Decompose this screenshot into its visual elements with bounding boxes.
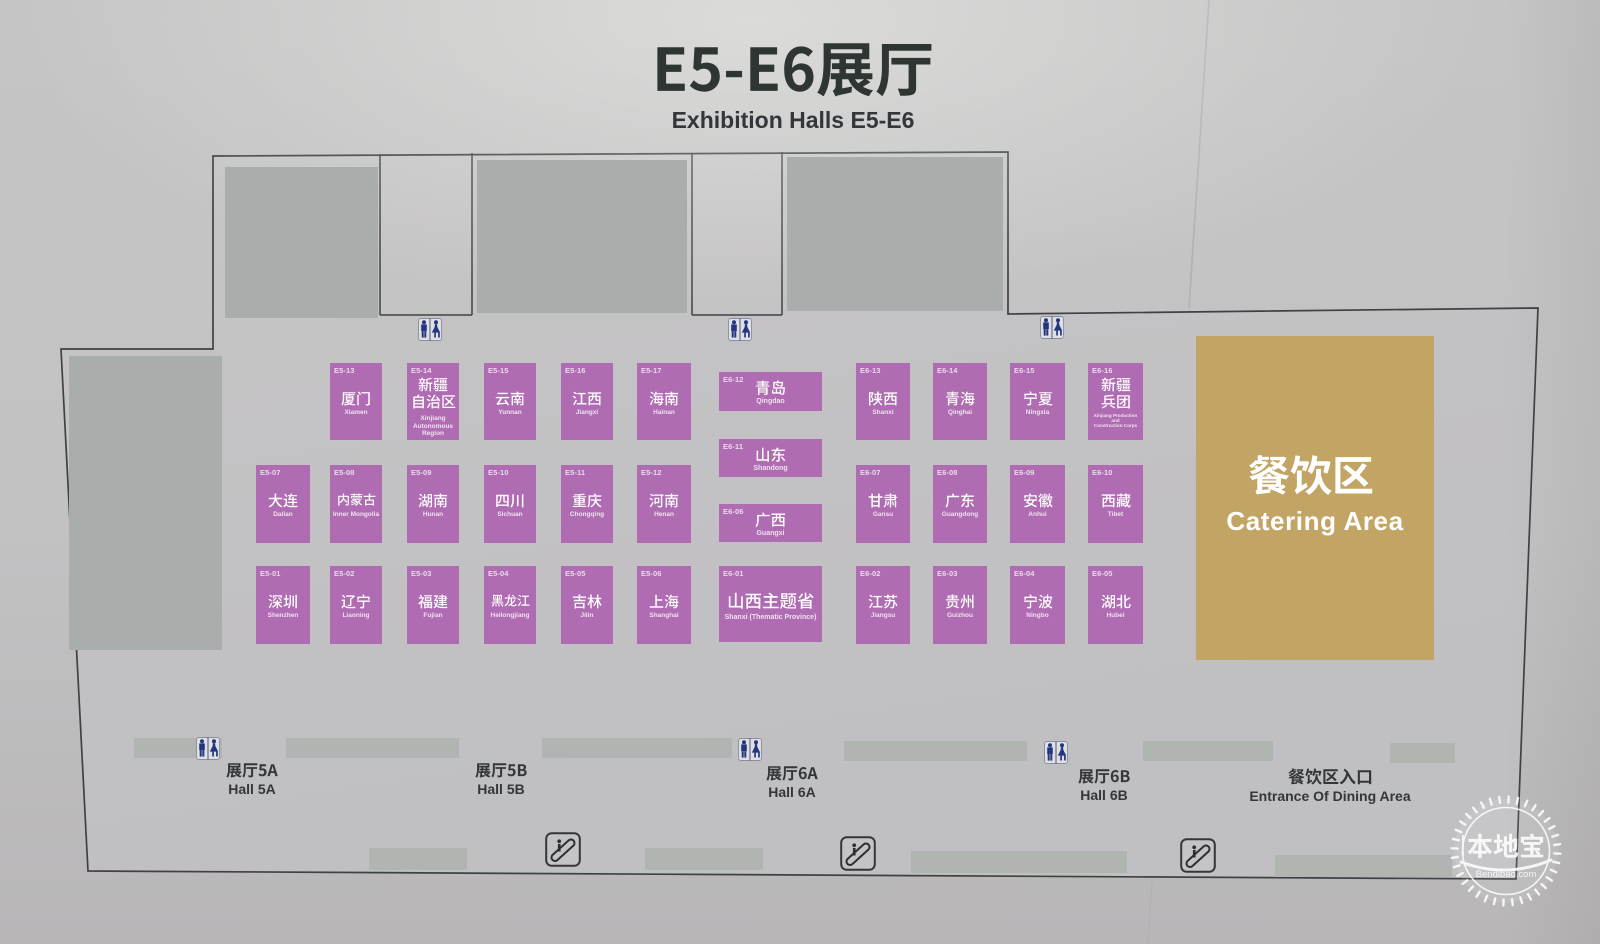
svg-text:Bendibao.com: Bendibao.com xyxy=(1476,869,1537,880)
